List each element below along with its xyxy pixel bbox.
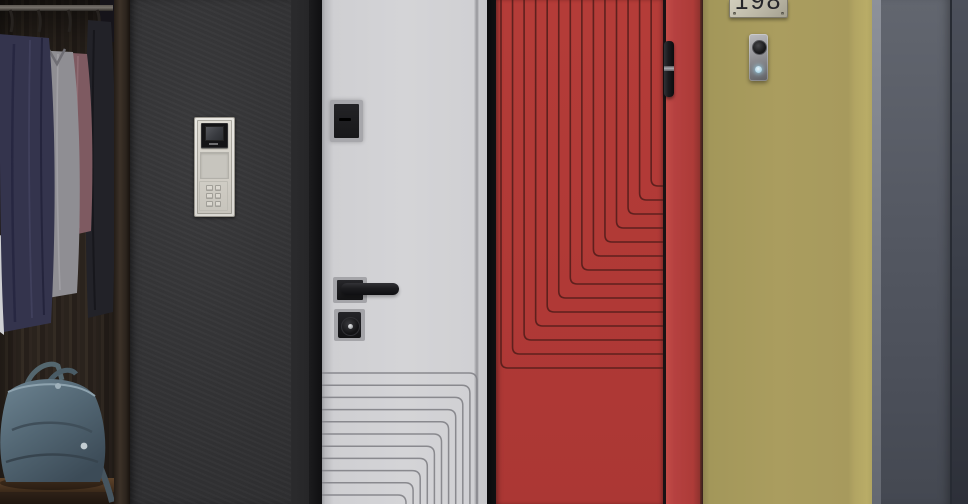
charcoal-door: [130, 0, 291, 504]
door-number: 198: [730, 0, 787, 16]
door-viewer-glass: [334, 104, 359, 138]
intercom-speaker-grille: [200, 152, 229, 179]
hanger-hooks: [10, 10, 99, 32]
lock-plate: [338, 312, 361, 338]
intercom-brand-label: [209, 143, 218, 145]
red-door-line-pattern: [496, 0, 663, 504]
keypad-button: [206, 201, 213, 207]
hanging-rod: [0, 5, 113, 11]
intercom-keypad: [199, 181, 228, 211]
keypad-button: [215, 193, 222, 199]
metal-frame-edge: [952, 0, 968, 504]
red-door: [496, 0, 663, 504]
handbag: [0, 364, 112, 502]
video-doorbell: [749, 34, 768, 81]
charcoal-door-edge: [291, 0, 309, 504]
door-viewer-slot: [339, 118, 351, 121]
handbag-clasp: [81, 443, 88, 450]
intercom-screen: [205, 126, 224, 141]
white-door: [322, 0, 487, 504]
doorbell-camera-lens: [752, 40, 767, 55]
entry-doors-scene: 198: [0, 0, 968, 504]
keypad-button: [206, 185, 213, 191]
keypad-button: [215, 201, 222, 207]
lock-rose: [334, 309, 365, 341]
metal-frame-highlight: [872, 0, 881, 504]
intercom-panel: [194, 117, 235, 217]
pull-handle-band: [664, 66, 674, 71]
charcoal-door-gap: [309, 0, 322, 504]
door-viewer: [330, 100, 363, 142]
clothing-navy-coat: [0, 34, 55, 332]
doorbell-button: [755, 66, 762, 73]
door-number-plate: 198: [729, 0, 788, 18]
wardrobe-contents: [0, 0, 130, 504]
intercom-screen-module: [201, 123, 228, 148]
lock-cylinder: [341, 317, 360, 336]
keypad-button: [206, 193, 213, 199]
plate-screw: [733, 12, 736, 15]
white-door-line-pattern: [322, 360, 487, 504]
metal-frame: [881, 0, 950, 504]
plate-screw: [781, 12, 784, 15]
yellow-door: 198: [703, 0, 872, 504]
lock-keyhole: [348, 324, 353, 329]
door-handle-lever: [341, 283, 399, 295]
red-door-pull-handle: [664, 41, 674, 97]
door-gap-shadow: [487, 0, 496, 504]
keypad-button: [215, 185, 222, 191]
wardrobe-side-panel: [114, 0, 131, 504]
